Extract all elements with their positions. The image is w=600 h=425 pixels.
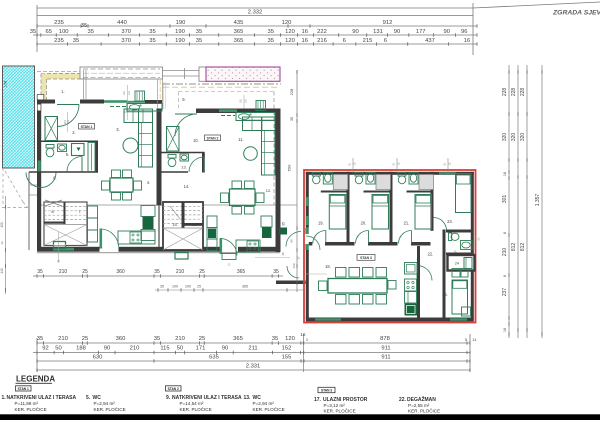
svg-text:178: 178: [4, 81, 8, 87]
svg-text:96: 96: [461, 29, 467, 35]
svg-text:6.: 6.: [53, 176, 56, 181]
svg-text:5.: 5.: [66, 152, 69, 157]
svg-text:STAN 3: STAN 3: [321, 389, 332, 393]
svg-text:28: 28: [57, 260, 60, 263]
svg-text:360: 360: [116, 269, 125, 275]
svg-text:15.: 15.: [172, 222, 178, 227]
svg-text:35: 35: [37, 269, 43, 275]
svg-text:911: 911: [381, 354, 390, 360]
svg-text:35: 35: [196, 29, 202, 35]
svg-text:171: 171: [196, 346, 206, 352]
svg-text:211: 211: [248, 346, 257, 352]
svg-text:NATKRIVENI ULAZ I TERASA: NATKRIVENI ULAZ I TERASA: [172, 395, 242, 401]
svg-text:365: 365: [242, 285, 248, 289]
svg-text:8.: 8.: [51, 209, 54, 214]
svg-text:635: 635: [209, 354, 219, 360]
svg-text:440: 440: [117, 20, 127, 26]
svg-text:140: 140: [0, 268, 4, 274]
svg-text:100: 100: [0, 222, 4, 228]
svg-text:P=11,88 m²: P=11,88 m²: [15, 401, 39, 406]
svg-text:61: 61: [393, 162, 396, 165]
svg-text:35: 35: [154, 269, 160, 275]
svg-text:KER. PLOČICE: KER. PLOČICE: [94, 406, 126, 412]
svg-text:WC: WC: [93, 395, 102, 401]
svg-text:16: 16: [464, 38, 470, 44]
svg-text:35: 35: [30, 29, 36, 35]
svg-text:21.: 21.: [404, 221, 410, 226]
svg-text:190: 190: [175, 29, 185, 35]
svg-text:120: 120: [285, 29, 295, 35]
svg-text:6: 6: [503, 275, 507, 277]
svg-text:10: 10: [0, 241, 4, 245]
svg-text:120: 120: [282, 20, 292, 26]
svg-text:216: 216: [317, 38, 327, 44]
svg-text:14.: 14.: [184, 184, 190, 189]
svg-text:912: 912: [383, 20, 393, 26]
svg-text:92: 92: [42, 346, 48, 352]
svg-text:152: 152: [282, 346, 292, 352]
svg-text:90: 90: [394, 29, 400, 35]
svg-text:NATKRIVENI ULAZ I TERASA: NATKRIVENI ULAZ I TERASA: [7, 395, 77, 401]
svg-text:KER. PLOČICE: KER. PLOČICE: [15, 406, 47, 412]
svg-text:90: 90: [443, 29, 449, 35]
svg-text:P=2,55 m²: P=2,55 m²: [408, 403, 430, 408]
svg-text:911: 911: [381, 346, 390, 352]
svg-text:35: 35: [267, 29, 273, 35]
svg-text:188: 188: [76, 346, 86, 352]
svg-text:190: 190: [176, 20, 186, 26]
svg-text:50: 50: [177, 346, 183, 352]
svg-text:365: 365: [234, 29, 244, 35]
svg-text:96: 96: [290, 239, 294, 243]
svg-text:9.: 9.: [182, 97, 185, 102]
svg-text:KER. PLOČICE: KER. PLOČICE: [324, 407, 356, 413]
svg-text:630: 630: [93, 354, 103, 360]
svg-text:13.: 13.: [181, 165, 187, 170]
svg-text:25: 25: [197, 285, 201, 289]
svg-text:STAN 3: STAN 3: [360, 256, 372, 260]
svg-text:19.: 19.: [318, 221, 324, 226]
svg-text:210: 210: [176, 269, 185, 275]
svg-text:210: 210: [58, 336, 68, 342]
svg-text:100: 100: [185, 285, 191, 289]
svg-text:131: 131: [373, 29, 383, 35]
svg-text:35: 35: [196, 38, 202, 44]
svg-text:177: 177: [416, 29, 426, 35]
svg-text:35: 35: [149, 38, 155, 44]
svg-text:35: 35: [290, 117, 294, 121]
svg-text:878: 878: [380, 336, 390, 342]
svg-text:10.: 10.: [193, 138, 199, 143]
svg-text:STAN 2: STAN 2: [168, 387, 179, 391]
svg-text:35: 35: [37, 336, 43, 342]
svg-text:1.357: 1.357: [535, 194, 541, 207]
svg-text:115: 115: [160, 346, 169, 352]
svg-text:370: 370: [121, 38, 131, 44]
svg-text:120: 120: [285, 38, 295, 44]
svg-text:23.: 23.: [447, 219, 453, 224]
svg-text:320: 320: [511, 133, 517, 142]
svg-text:210: 210: [66, 119, 70, 124]
svg-text:35: 35: [149, 29, 155, 35]
svg-text:365: 365: [233, 336, 243, 342]
svg-text:16: 16: [301, 38, 307, 44]
svg-text:16.: 16.: [192, 222, 198, 227]
svg-text:35: 35: [281, 252, 285, 256]
svg-text:25: 25: [82, 336, 88, 342]
svg-text:1: 1: [306, 337, 309, 342]
svg-text:17: 17: [297, 256, 301, 260]
svg-text:25: 25: [199, 336, 205, 342]
svg-text:210: 210: [175, 336, 185, 342]
svg-text:P=2,94 m²: P=2,94 m²: [253, 401, 275, 406]
svg-text:60: 60: [478, 237, 481, 240]
svg-text:13.: 13.: [244, 395, 252, 401]
svg-text:812: 812: [520, 243, 526, 252]
svg-text:141: 141: [128, 90, 131, 95]
svg-text:4.: 4.: [147, 180, 150, 185]
svg-text:100: 100: [59, 29, 69, 35]
svg-text:2.331: 2.331: [246, 363, 261, 369]
svg-text:STAN 1: STAN 1: [81, 125, 93, 129]
svg-text:KER. PLOČICE: KER. PLOČICE: [408, 407, 440, 413]
svg-text:237: 237: [502, 288, 508, 297]
svg-text:320: 320: [502, 133, 508, 142]
svg-text:32: 32: [228, 264, 231, 267]
svg-text:155: 155: [282, 354, 292, 360]
svg-text:KER. PLOČICE: KER. PLOČICE: [180, 406, 212, 412]
svg-text:181: 181: [240, 98, 243, 103]
svg-text:437: 437: [425, 38, 435, 44]
svg-text:35: 35: [160, 285, 164, 289]
svg-text:24: 24: [455, 262, 459, 266]
svg-text:61: 61: [349, 162, 352, 165]
svg-text:35: 35: [272, 336, 278, 342]
svg-text:320: 320: [520, 133, 526, 142]
svg-text:16: 16: [503, 172, 507, 176]
svg-text:35: 35: [273, 269, 279, 275]
svg-text:222: 222: [317, 29, 327, 35]
svg-text:365: 365: [234, 38, 244, 44]
svg-text:210: 210: [502, 248, 508, 257]
svg-text:210: 210: [59, 269, 68, 275]
svg-text:3.: 3.: [116, 127, 119, 132]
svg-text:360: 360: [116, 336, 126, 342]
svg-text:11.: 11.: [238, 137, 243, 142]
svg-text:365: 365: [237, 269, 246, 275]
svg-text:590: 590: [287, 164, 292, 171]
svg-text:P=2,94 m²: P=2,94 m²: [94, 401, 116, 406]
svg-text:228: 228: [289, 88, 294, 95]
svg-text:35: 35: [154, 336, 160, 342]
svg-text:228: 228: [502, 88, 508, 97]
svg-text:9.: 9.: [166, 395, 171, 401]
svg-text:STAN 1: STAN 1: [18, 387, 29, 391]
svg-text:25.: 25.: [442, 292, 448, 297]
svg-text:15: 15: [398, 162, 401, 165]
svg-text:22.: 22.: [399, 397, 407, 403]
svg-text:6: 6: [343, 38, 346, 44]
svg-text:15: 15: [449, 162, 452, 165]
svg-text:65: 65: [45, 29, 51, 35]
svg-text:435: 435: [234, 20, 244, 26]
svg-text:ZGRADA SJEVER: ZGRADA SJEVER: [552, 10, 600, 17]
svg-text:2.332: 2.332: [248, 10, 263, 16]
svg-text:11: 11: [472, 337, 477, 342]
svg-text:KER. PLOČICE: KER. PLOČICE: [253, 406, 285, 412]
svg-text:90: 90: [352, 29, 358, 35]
svg-text:181: 181: [123, 90, 126, 95]
svg-text:35: 35: [267, 38, 273, 44]
svg-text:228: 228: [511, 88, 517, 97]
svg-text:22.: 22.: [428, 252, 434, 257]
svg-text:120: 120: [285, 336, 295, 342]
svg-text:7.: 7.: [78, 209, 81, 214]
svg-text:215: 215: [363, 38, 373, 44]
svg-text:370: 370: [121, 29, 131, 35]
svg-text:235: 235: [54, 38, 64, 44]
svg-text:6: 6: [384, 38, 387, 44]
svg-text:190: 190: [175, 38, 185, 44]
svg-text:35: 35: [81, 23, 87, 29]
svg-text:5: 5: [465, 337, 468, 342]
svg-text:STAN 2: STAN 2: [207, 136, 219, 140]
svg-text:210: 210: [130, 346, 140, 352]
svg-text:WC: WC: [253, 395, 262, 401]
svg-text:160: 160: [292, 263, 296, 268]
svg-text:16: 16: [503, 328, 507, 332]
svg-text:90: 90: [222, 346, 228, 352]
svg-text:P=14,54 m²: P=14,54 m²: [180, 401, 204, 406]
svg-text:6: 6: [503, 232, 507, 234]
svg-text:812: 812: [511, 243, 517, 252]
svg-text:50: 50: [55, 346, 61, 352]
svg-text:17.: 17.: [314, 397, 322, 403]
svg-text:15: 15: [354, 162, 357, 165]
svg-text:235: 235: [54, 20, 64, 26]
svg-text:5.: 5.: [86, 395, 91, 401]
svg-text:61: 61: [444, 162, 447, 165]
svg-text:228: 228: [520, 88, 526, 97]
svg-text:35: 35: [87, 29, 93, 35]
svg-text:35: 35: [282, 222, 286, 226]
svg-text:20.: 20.: [361, 221, 367, 226]
svg-text:90: 90: [104, 346, 110, 352]
svg-text:LEGENDA: LEGENDA: [16, 375, 55, 384]
svg-text:35: 35: [73, 38, 79, 44]
svg-text:301: 301: [502, 195, 508, 204]
svg-text:P=3,12 m²: P=3,12 m²: [324, 403, 346, 408]
svg-text:18.: 18.: [325, 264, 331, 269]
svg-text:1.: 1.: [61, 89, 64, 94]
svg-text:16: 16: [301, 29, 307, 35]
svg-text:25: 25: [82, 269, 88, 275]
svg-text:141: 141: [245, 98, 248, 103]
svg-text:2.: 2.: [72, 130, 75, 135]
svg-text:12.: 12.: [266, 188, 272, 193]
svg-text:25: 25: [199, 269, 205, 275]
svg-text:100: 100: [172, 285, 178, 289]
